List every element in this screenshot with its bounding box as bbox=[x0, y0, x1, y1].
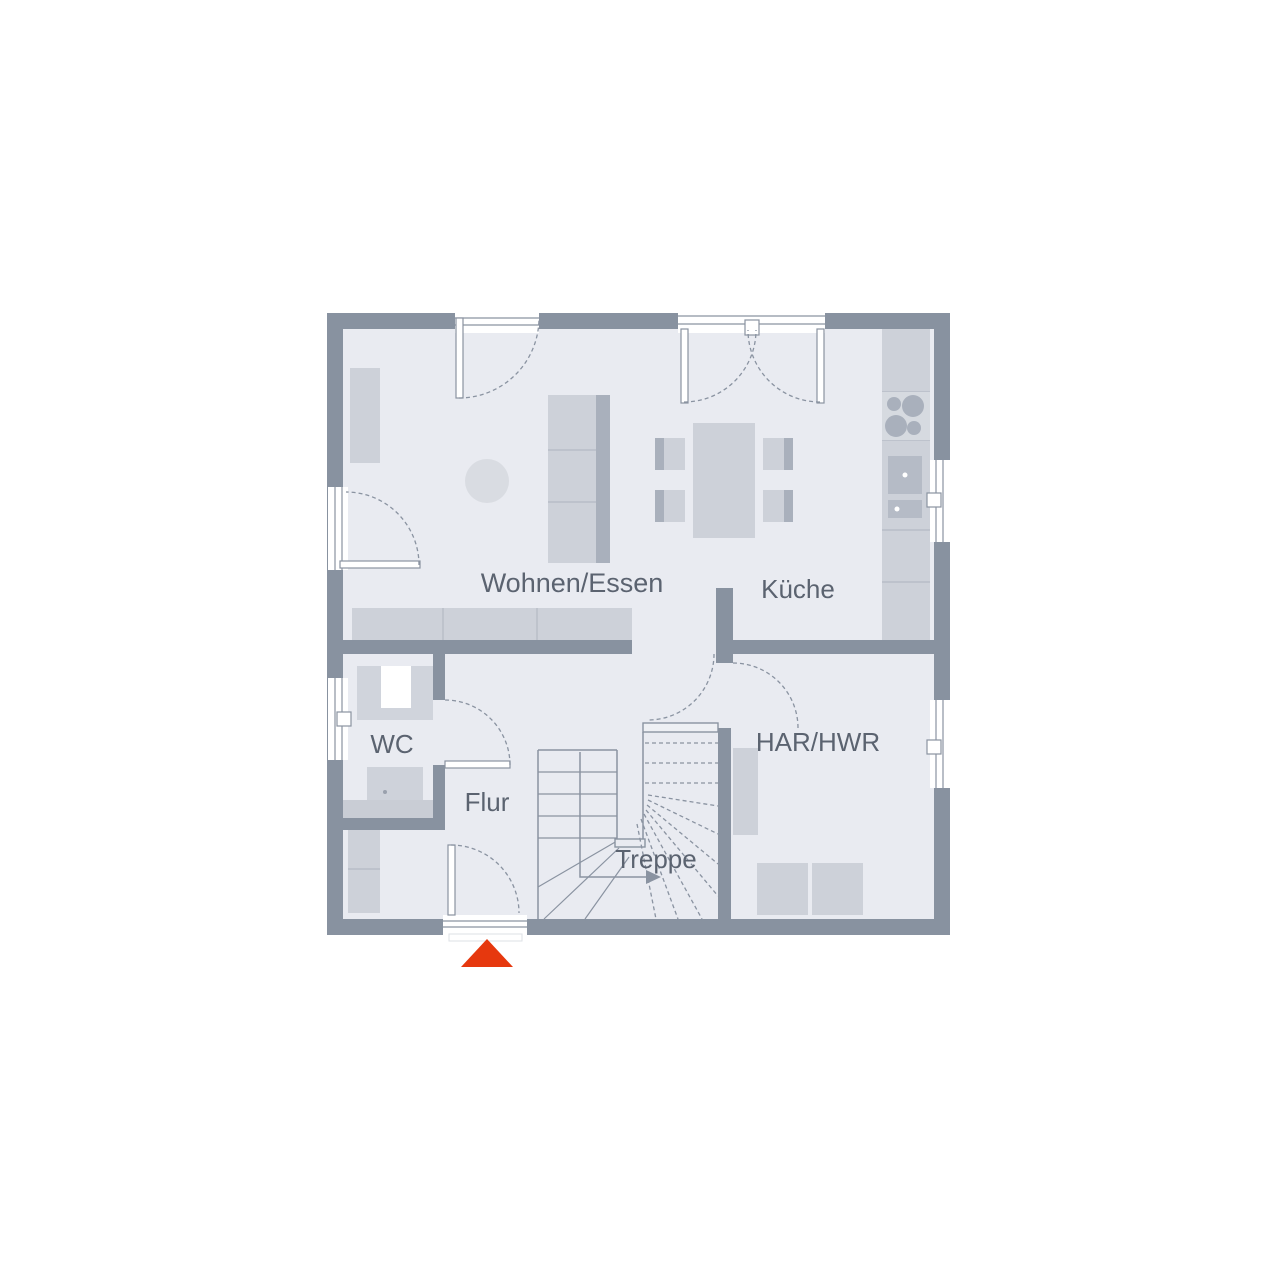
toilet-bowl bbox=[381, 666, 411, 708]
round-rug bbox=[465, 459, 509, 503]
faucet-dot bbox=[895, 507, 900, 512]
room-label-treppe: Treppe bbox=[615, 844, 696, 874]
window-mullion bbox=[927, 493, 941, 507]
door-leaf-entrance bbox=[448, 845, 455, 915]
wall-wc-right-top bbox=[433, 654, 445, 700]
kitchen-furniture bbox=[882, 329, 930, 640]
dining-table bbox=[693, 423, 755, 538]
window-top-left bbox=[455, 310, 539, 333]
chair-back bbox=[784, 438, 793, 470]
sideboard bbox=[350, 368, 380, 463]
faucet-dot bbox=[903, 473, 908, 478]
burner-icon bbox=[887, 397, 901, 411]
utility-shelf bbox=[733, 748, 758, 835]
door-leaf-top-left bbox=[456, 318, 463, 398]
shelf-back bbox=[596, 395, 610, 563]
wall-kitchen-stub bbox=[716, 588, 733, 663]
burner-icon bbox=[885, 415, 907, 437]
wall-stair-side bbox=[718, 728, 731, 919]
door-leaf-terrace bbox=[340, 561, 420, 568]
wall-divider-right bbox=[733, 640, 934, 654]
door-leaf-double-right bbox=[817, 329, 824, 403]
chair-back bbox=[655, 438, 664, 470]
entrance-marker bbox=[461, 939, 513, 967]
wall-wc-bottom bbox=[343, 818, 445, 830]
room-label-flur: Flur bbox=[465, 787, 510, 817]
burner-icon bbox=[907, 421, 921, 435]
chair-back bbox=[784, 490, 793, 522]
wc-sink bbox=[367, 767, 423, 800]
room-label-wc: WC bbox=[370, 729, 413, 759]
entrance-threshold bbox=[443, 915, 527, 935]
door-leaf-wc bbox=[445, 761, 510, 768]
entrance-step bbox=[449, 934, 522, 941]
wardrobe bbox=[348, 830, 380, 913]
room-label-wohnen-essen: Wohnen/Essen bbox=[481, 568, 664, 598]
drain-dot bbox=[383, 790, 387, 794]
floor-plan: Wohnen/Essen Küche WC Flur Treppe HAR/HW… bbox=[0, 0, 1280, 1280]
washer bbox=[757, 863, 808, 915]
floor-plan-canvas: Wohnen/Essen Küche WC Flur Treppe HAR/HW… bbox=[0, 0, 1280, 1280]
sofa bbox=[352, 608, 632, 640]
chair-back bbox=[655, 490, 664, 522]
burner-icon bbox=[902, 395, 924, 417]
window-mullion bbox=[927, 740, 941, 754]
wall-divider-left bbox=[343, 640, 632, 654]
window-mullion bbox=[337, 712, 351, 726]
room-label-kueche: Küche bbox=[761, 574, 835, 604]
door-mullion bbox=[745, 320, 759, 335]
kitchen-sink-small bbox=[888, 500, 922, 518]
window-terrace-left bbox=[328, 487, 348, 570]
room-label-har-hwr: HAR/HWR bbox=[756, 727, 880, 757]
door-leaf-double-left bbox=[681, 329, 688, 403]
dryer bbox=[812, 863, 863, 915]
stair-guard bbox=[643, 723, 718, 732]
wc-vanity bbox=[343, 800, 433, 818]
